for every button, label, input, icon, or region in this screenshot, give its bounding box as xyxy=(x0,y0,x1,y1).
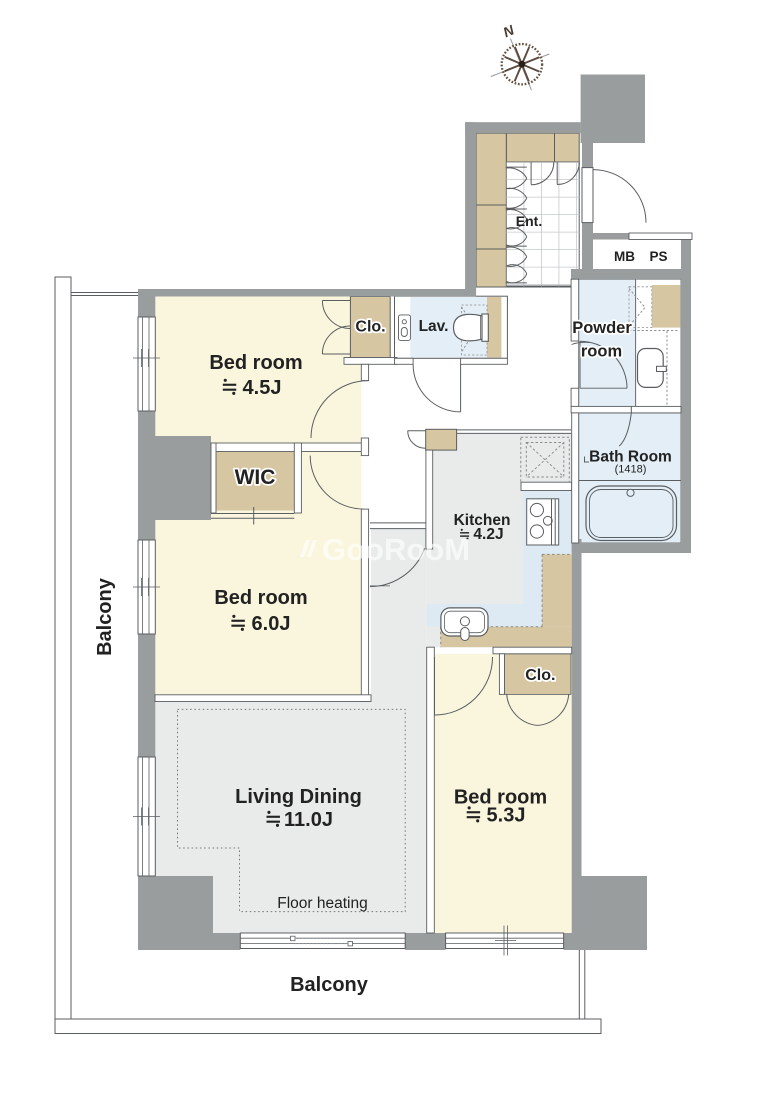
svg-text:GooRooM: GooRooM xyxy=(322,532,470,567)
svg-text:Bed room: Bed room xyxy=(209,352,302,374)
svg-text:Living Dining: Living Dining xyxy=(235,786,362,808)
svg-text:4.5J: 4.5J xyxy=(243,377,282,399)
svg-text:Ent.: Ent. xyxy=(516,213,542,229)
svg-text:Balcony: Balcony xyxy=(94,577,116,656)
svg-text:MB: MB xyxy=(614,249,635,264)
svg-text:Lav.: Lav. xyxy=(419,318,449,335)
svg-text:5.3J: 5.3J xyxy=(487,805,526,827)
svg-text:(1418): (1418) xyxy=(615,464,647,476)
svg-text:Floor heating: Floor heating xyxy=(277,895,367,912)
svg-text:Balcony: Balcony xyxy=(290,974,369,996)
svg-text:PS: PS xyxy=(649,249,667,264)
svg-text:4.2J: 4.2J xyxy=(473,526,503,543)
svg-text:Bed room: Bed room xyxy=(214,587,307,609)
svg-text:6.0J: 6.0J xyxy=(252,613,291,635)
svg-text:Powder: Powder xyxy=(572,319,632,337)
svg-text:11.0J: 11.0J xyxy=(284,809,333,831)
svg-text:Clo.: Clo. xyxy=(525,667,555,684)
svg-text:WIC: WIC xyxy=(235,466,276,489)
svg-text:room: room xyxy=(581,343,622,361)
svg-text:Clo.: Clo. xyxy=(355,319,385,336)
